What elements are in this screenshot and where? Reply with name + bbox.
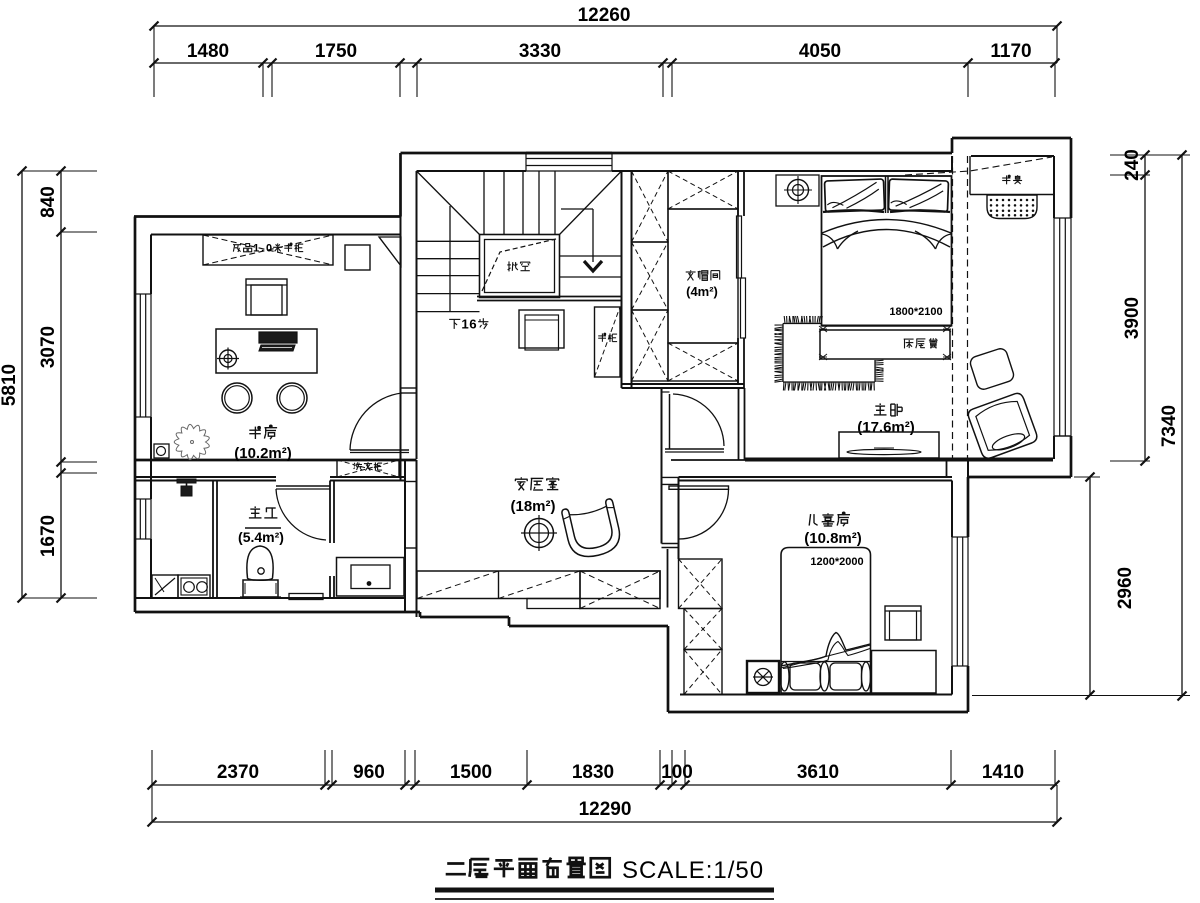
- svg-text:1830: 1830: [572, 762, 614, 783]
- svg-text:3070: 3070: [38, 326, 59, 368]
- svg-text:3610: 3610: [797, 762, 839, 783]
- svg-text:840: 840: [38, 186, 59, 218]
- svg-text:SCALE:1/50: SCALE:1/50: [622, 857, 764, 884]
- svg-text:1: 1: [461, 317, 468, 332]
- svg-text:3330: 3330: [519, 41, 561, 62]
- svg-text:1670: 1670: [38, 515, 59, 557]
- svg-text:12260: 12260: [578, 5, 631, 26]
- svg-text:7340: 7340: [1159, 405, 1180, 447]
- svg-text:1480: 1480: [187, 41, 229, 62]
- svg-text:2370: 2370: [217, 762, 259, 783]
- svg-text:(4m²): (4m²): [686, 284, 718, 299]
- svg-text:(17.6m²): (17.6m²): [857, 419, 915, 436]
- svg-text:(10.2m²): (10.2m²): [234, 445, 292, 462]
- svg-text:1410: 1410: [982, 762, 1024, 783]
- svg-text:12290: 12290: [579, 799, 632, 820]
- svg-text:6: 6: [469, 317, 476, 332]
- svg-text:5810: 5810: [0, 364, 20, 406]
- svg-text:1800*2100: 1800*2100: [889, 306, 942, 318]
- svg-text:(18m²): (18m²): [510, 498, 555, 515]
- svg-text:3900: 3900: [1122, 297, 1143, 339]
- svg-text:1: 1: [253, 243, 259, 255]
- svg-text:2960: 2960: [1115, 567, 1136, 609]
- svg-text:960: 960: [353, 762, 385, 783]
- svg-text:(5.4m²): (5.4m²): [238, 529, 284, 545]
- svg-text:1500: 1500: [450, 762, 492, 783]
- svg-text:1170: 1170: [990, 41, 1031, 62]
- svg-text:.: .: [261, 243, 264, 255]
- svg-text:0: 0: [266, 243, 272, 255]
- svg-text:(10.8m²): (10.8m²): [804, 530, 862, 547]
- svg-text:240: 240: [1122, 149, 1143, 181]
- svg-text:100: 100: [661, 762, 693, 783]
- svg-text:1750: 1750: [315, 41, 357, 62]
- svg-text:1200*2000: 1200*2000: [810, 556, 863, 568]
- svg-text:4050: 4050: [799, 41, 841, 62]
